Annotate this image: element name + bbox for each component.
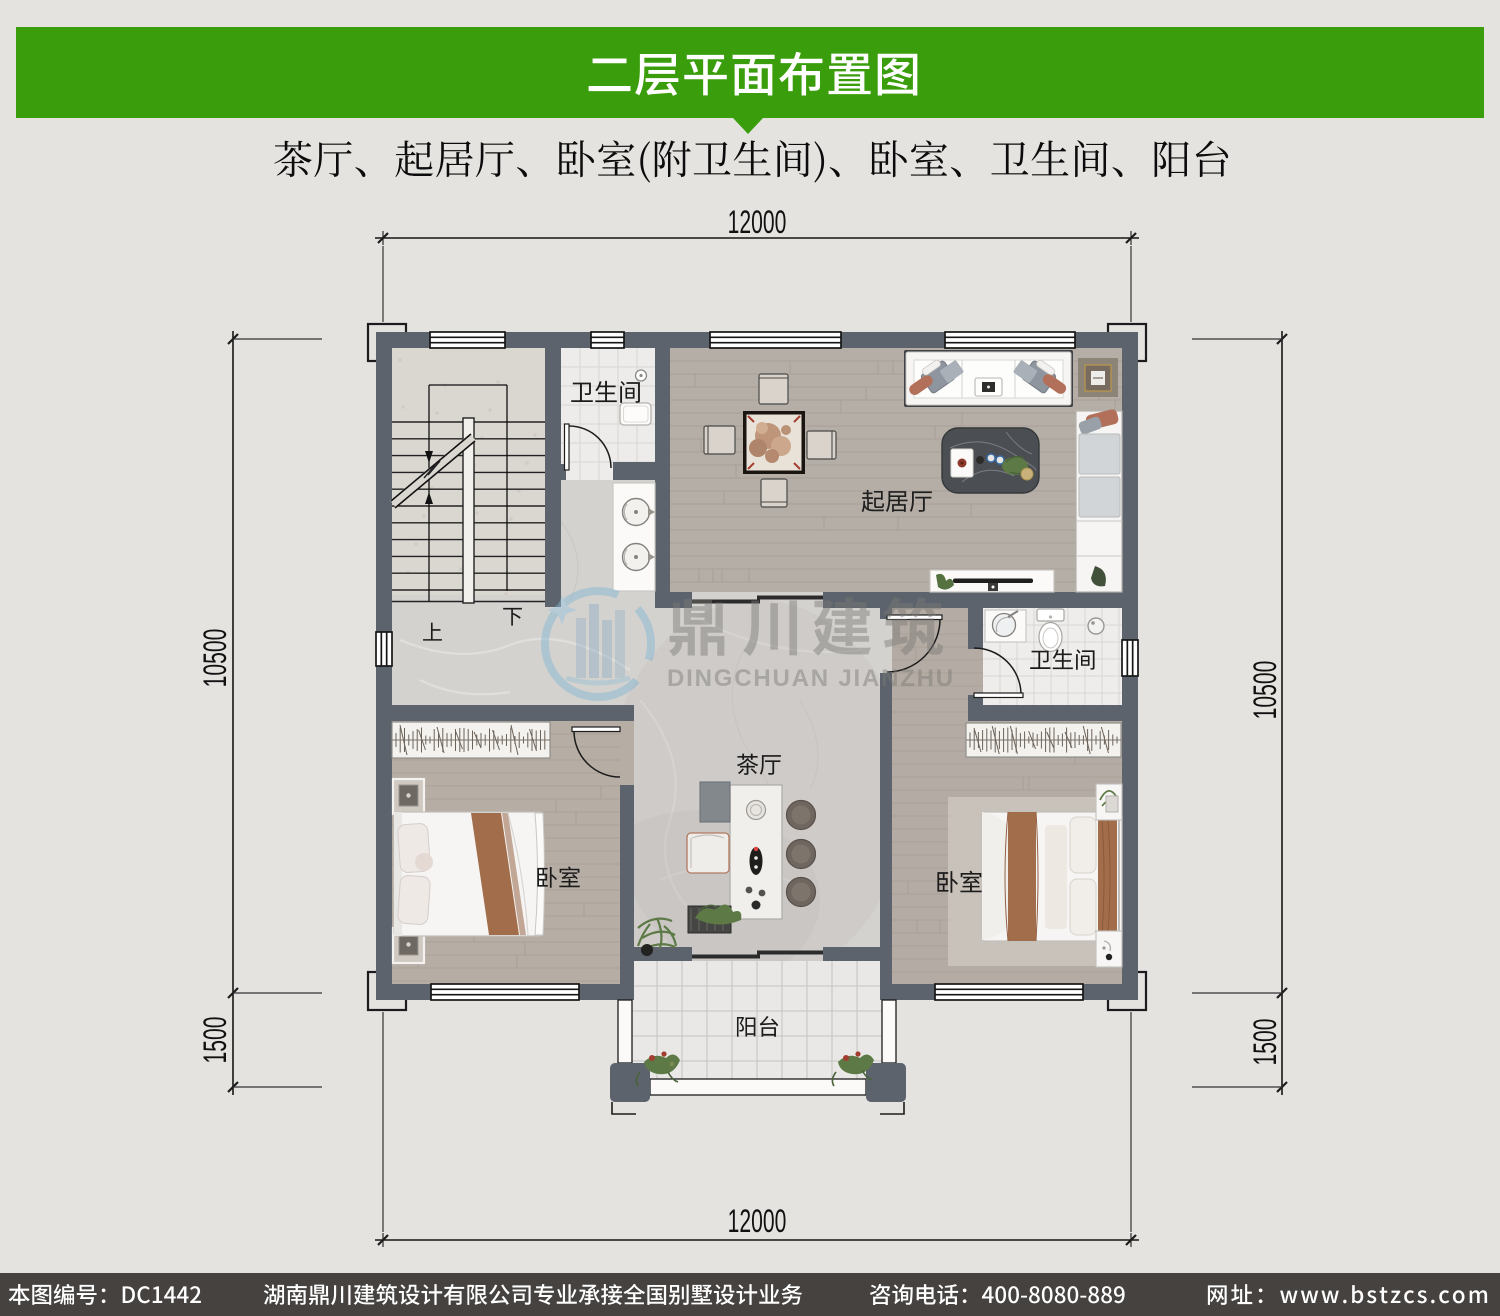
svg-text:12000: 12000: [728, 203, 787, 240]
svg-text:10500: 10500: [196, 629, 233, 688]
svg-text:10500: 10500: [1246, 661, 1283, 720]
svg-text:1500: 1500: [196, 1017, 233, 1064]
svg-text:12000: 12000: [728, 1202, 787, 1239]
svg-text:1500: 1500: [1246, 1019, 1283, 1066]
svg-text:DINGCHUAN JIANZHU: DINGCHUAN JIANZHU: [667, 665, 955, 692]
